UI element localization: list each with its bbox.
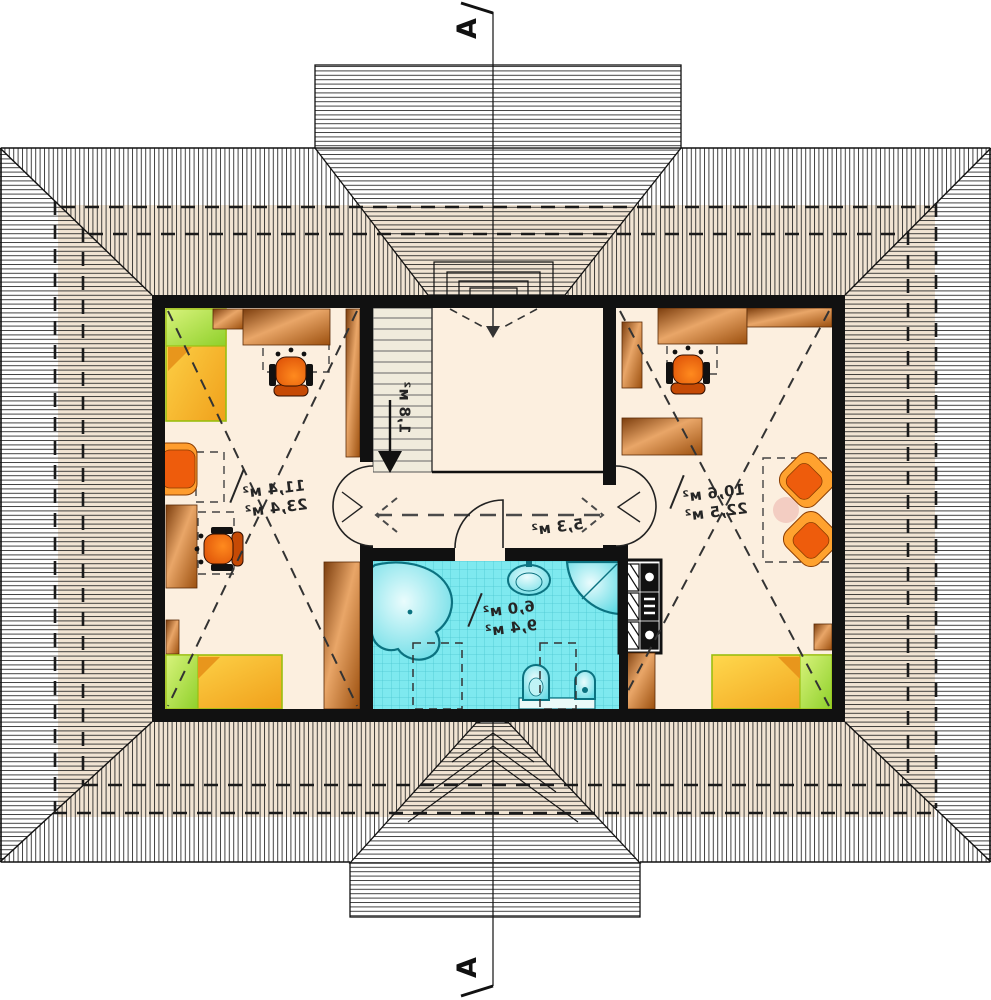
floor-plan-drawing xyxy=(0,0,991,1000)
area: 1,8 м² xyxy=(396,381,414,433)
wall-exterior-bottom xyxy=(152,709,845,722)
wall-bathroom-top-left xyxy=(373,548,455,561)
shelf-icon-2 xyxy=(166,620,179,654)
wall-bathroom-top-right xyxy=(505,548,603,561)
section-marker-bottom: A xyxy=(452,957,483,978)
desk-icon-3 xyxy=(658,308,747,344)
desk-icon xyxy=(243,309,330,345)
desk-icon-2 xyxy=(166,505,197,588)
shelf-icon xyxy=(213,309,243,329)
wall-exterior-left xyxy=(152,295,165,722)
section-flag-top xyxy=(461,3,493,13)
section-flag-bottom xyxy=(461,986,493,996)
wall-right-room-upper xyxy=(603,308,616,485)
wall-left-room-lower xyxy=(360,543,373,709)
bed-icon-2 xyxy=(166,655,282,709)
bidet-icon xyxy=(575,671,595,699)
wall-exterior-right xyxy=(832,295,845,722)
wall-left-room-upper xyxy=(360,308,373,462)
cabinet-icon-2 xyxy=(625,653,655,709)
toilet-icon xyxy=(523,665,549,700)
area-label-stairs: 1,8 м² xyxy=(395,368,414,448)
floor-plan-page: 11,4 м² 23,4 м² 10,6 м² 22,5 м² 5,3 м² 6… xyxy=(0,0,991,1000)
section-marker-top: A xyxy=(452,18,483,39)
shelf-icon-3 xyxy=(747,308,832,327)
wall-exterior-top xyxy=(152,295,845,308)
dresser-icon xyxy=(622,418,702,455)
wall-bathroom-right xyxy=(619,553,628,709)
wardrobe-icon xyxy=(324,562,360,709)
bed-icon-3 xyxy=(712,655,832,709)
shelf-icon-4 xyxy=(814,624,832,650)
